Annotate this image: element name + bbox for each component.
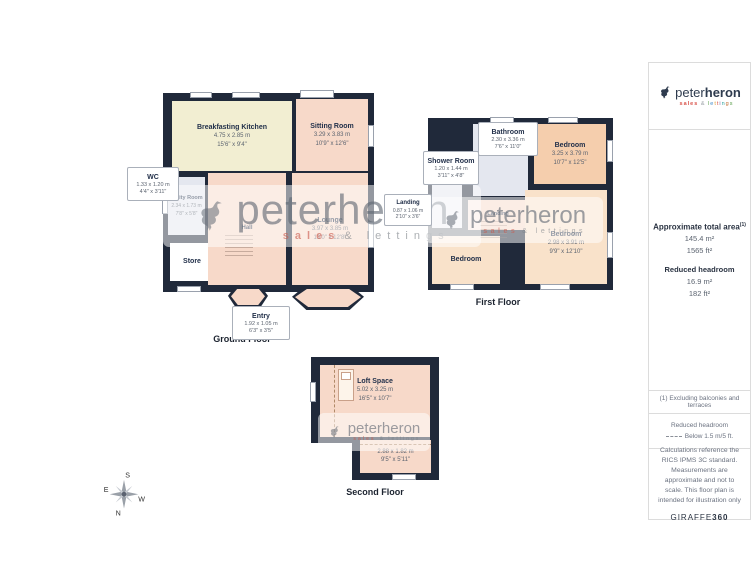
compass-e: E [104, 486, 109, 494]
watermark-second: peterheron sales & lettings [318, 413, 430, 451]
room-name: Bathroom [491, 128, 524, 137]
legend-item: Below 1.5 m/5 ft. [685, 433, 733, 440]
room-dim-metric: 2.30 x 3.36 m [491, 137, 524, 144]
reduced-headroom-ft2: 182 ft² [689, 289, 710, 298]
window [607, 140, 613, 162]
dashed-line-sample [666, 436, 682, 437]
room-sitting-room: Sitting Room 3.29 x 3.83 m 10'9" x 12'6" [296, 99, 368, 171]
heron-icon [442, 209, 464, 231]
room-dim-imperial: 10'9" x 12'6" [316, 141, 349, 149]
window [177, 286, 201, 292]
watermark-text: peterheron [348, 422, 421, 436]
compass-rose-icon: S E W N [100, 468, 148, 518]
room-name: Bedroom [451, 255, 482, 264]
window [392, 474, 416, 480]
footnote-marker: (1) [740, 222, 746, 228]
room-name: Shower Room [427, 157, 474, 166]
room-dim-metric: 5.02 x 3.25 m [357, 387, 393, 395]
bay-entry [228, 286, 268, 308]
sidebar-area-panel: Approximate total area(1) 145.4 m² 1565 … [648, 129, 751, 391]
callout-landing: Landing 0.87 x 1.06 m 2'10" x 3'6" [384, 194, 432, 226]
room-dim-metric: 3.29 x 3.83 m [314, 132, 350, 140]
watermark-tagline-sales: sales [483, 228, 518, 235]
heron-icon [194, 198, 230, 234]
room-dim-imperial: 10'7" x 12'5" [554, 160, 587, 168]
window [548, 117, 578, 123]
brand-name: peterheron [675, 85, 741, 100]
room-dim-metric: 3.25 x 3.79 m [552, 151, 588, 159]
compass-s: S [125, 472, 130, 480]
room-breakfasting-kitchen: Breakfasting Kitchen 4.75 x 2.85 m 15'6"… [172, 101, 292, 171]
floorplan-canvas: Breakfasting Kitchen 4.75 x 2.85 m 15'6"… [0, 0, 755, 566]
footnote-text: (1) Excluding balconies and terraces [649, 395, 750, 409]
room-dim-metric: 1.33 x 1.20 m [136, 182, 169, 189]
reduced-headroom-title: Reduced headroom [664, 265, 734, 274]
sidebar-disclaimer-panel: Calculations reference the RICS IPMS 3C … [648, 448, 751, 520]
first-floor-label: First Floor [458, 297, 538, 307]
room-dim-metric: 1.20 x 1.44 m [434, 166, 467, 173]
total-area-m2: 145.4 m² [685, 234, 715, 243]
compass-n: N [116, 510, 121, 518]
callout-wc: WC 1.33 x 1.20 m 4'4" x 3'11" [127, 167, 179, 201]
room-dim-imperial: 15'6" x 9'4" [217, 142, 247, 150]
room-dim-imperial: 4'4" x 3'11" [140, 189, 167, 196]
callout-entry: Entry 1.92 x 1.05 m 6'3" x 3'5" [232, 306, 290, 340]
sidebar-logo-panel: peterheron sales & lettings [648, 62, 751, 130]
room-dim-imperial: 16'5" x 10'7" [359, 396, 392, 404]
disclaimer-text: Calculations reference the RICS IPMS 3C … [649, 446, 750, 505]
compass-w: W [138, 495, 145, 503]
second-floor-label: Second Floor [335, 487, 415, 497]
heron-icon [658, 85, 673, 100]
window [310, 382, 316, 402]
window [607, 232, 613, 258]
sidebar-legend-panel: Reduced headroom Below 1.5 m/5 ft. [648, 413, 751, 449]
callout-bathroom: Bathroom 2.30 x 3.36 m 7'6" x 11'0" [478, 122, 538, 156]
callout-shower-room: Shower Room 1.20 x 1.44 m 3'11" x 4'8" [423, 151, 479, 185]
room-dim-metric: 4.75 x 2.85 m [214, 133, 250, 141]
bed-icon [338, 369, 354, 401]
door-gap [300, 90, 334, 98]
watermark-first: peterheron sales & lettings [425, 197, 603, 243]
room-dim-imperial: 2'10" x 3'6" [396, 214, 421, 220]
window [232, 92, 260, 98]
sidebar-footnote-panel: (1) Excluding balconies and terraces [648, 390, 751, 414]
brand-tagline: sales & lettings [680, 101, 734, 107]
watermark-tagline-rest: & lettings [380, 436, 421, 442]
room-dim-imperial: 3'11" x 4'8" [438, 173, 465, 180]
heron-icon [328, 425, 342, 439]
room-dim-imperial: 9'5" x 5'11" [381, 457, 410, 465]
total-area-ft2: 1565 ft² [687, 246, 712, 255]
bay-window-lounge [292, 286, 364, 310]
area-title: Approximate total area(1) [653, 222, 746, 232]
room-dim-imperial: 9'9" x 12'10" [550, 249, 583, 257]
watermark-tagline-rest: & lettings [522, 228, 586, 235]
room-name: Breakfasting Kitchen [197, 123, 267, 132]
room-name: Loft Space [357, 377, 393, 386]
reduced-headroom-m2: 16.9 m² [687, 277, 712, 286]
room-bedroom-first-right: Bedroom 3.25 x 3.79 m 10'7" x 12'5" [534, 124, 606, 184]
legend-title: Reduced headroom [671, 422, 728, 429]
watermark-tagline-sales: sales [353, 436, 376, 442]
room-dim-imperial: 6'3" x 3'5" [249, 328, 273, 335]
room-dim-imperial: 7'6" x 11'0" [495, 144, 522, 151]
watermark-tagline-sales: sales [283, 230, 341, 242]
watermark-text: peterheron [470, 205, 586, 228]
window [190, 92, 212, 98]
room-name: Landing [396, 200, 419, 208]
room-dim-metric: 1.92 x 1.05 m [244, 321, 277, 328]
room-name: Store [183, 257, 201, 266]
giraffe360-credit: GIRAFFE360 [670, 513, 728, 522]
room-name: Bedroom [555, 141, 586, 150]
window [540, 284, 570, 290]
window [450, 284, 474, 290]
room-name: Entry [252, 312, 270, 321]
window [368, 125, 374, 147]
room-name: WC [147, 173, 159, 182]
room-name: Sitting Room [310, 122, 354, 131]
